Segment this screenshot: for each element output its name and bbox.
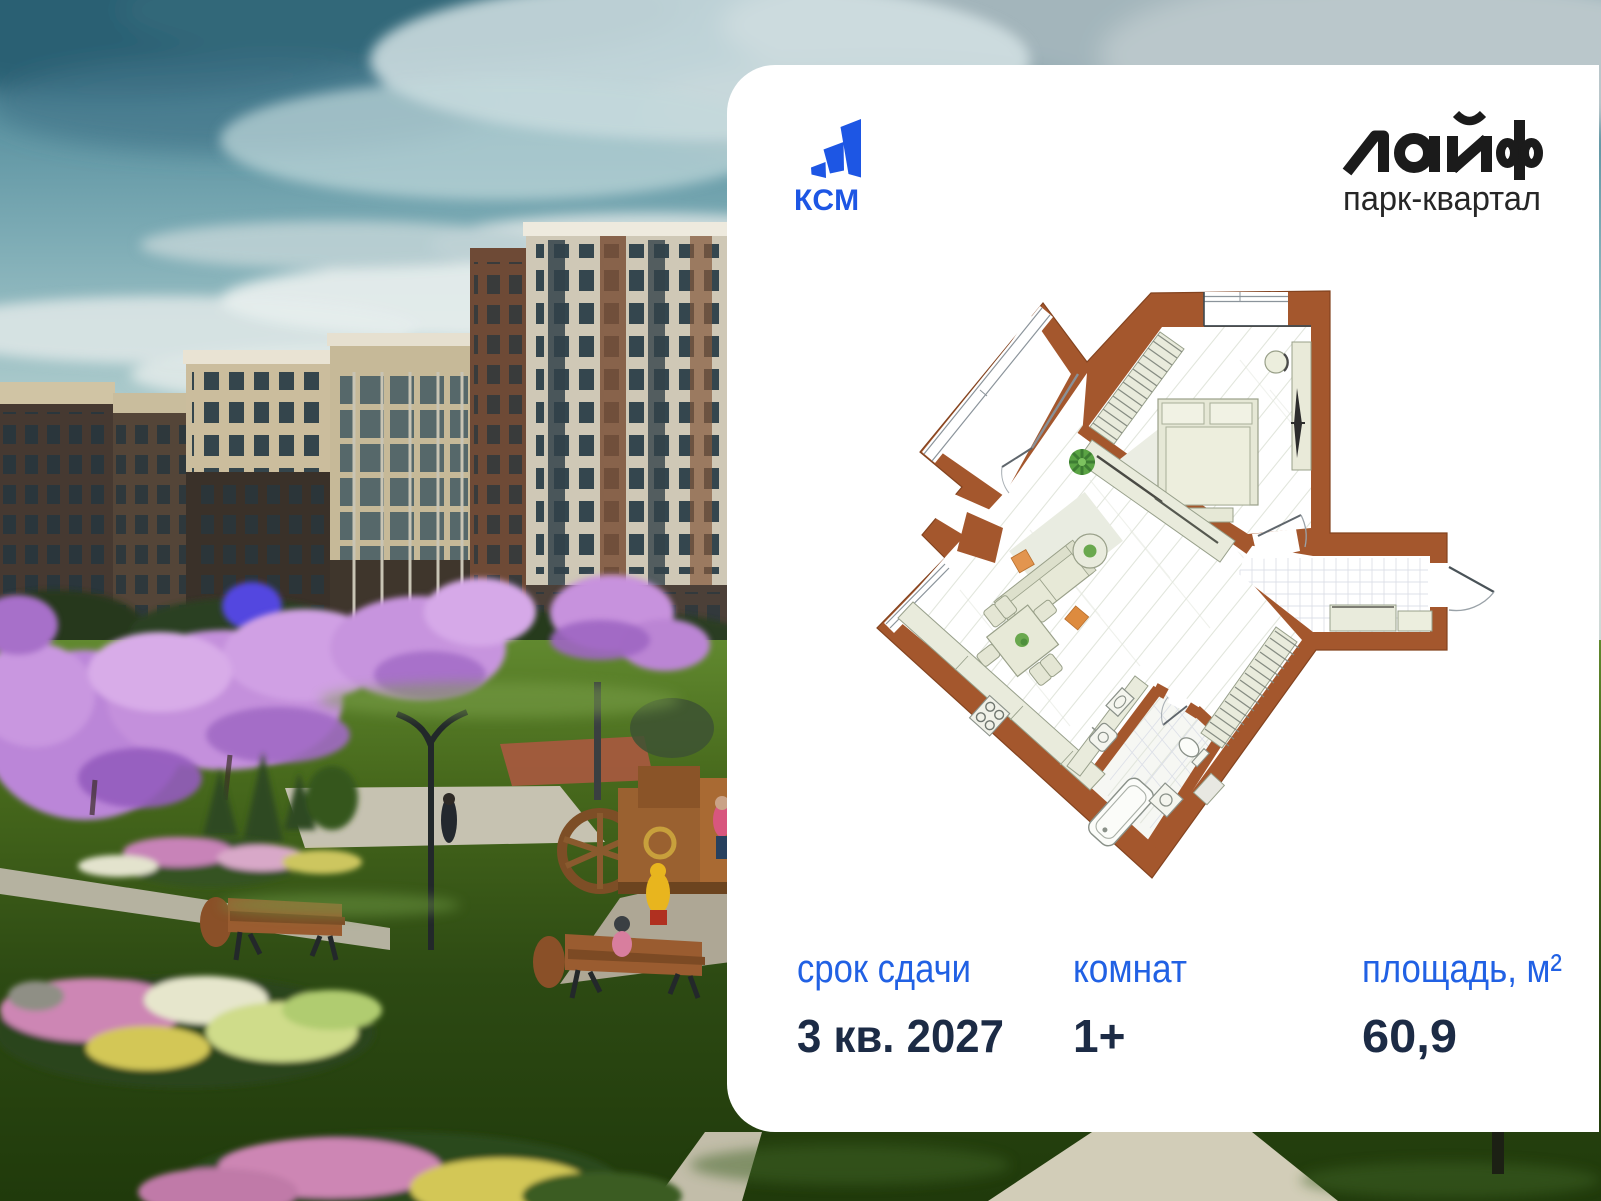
svg-text:парк-квартал: парк-квартал bbox=[1343, 180, 1541, 218]
svg-text:комнат: комнат bbox=[1073, 947, 1187, 991]
svg-text:60,9: 60,9 bbox=[1362, 1010, 1457, 1062]
svg-text:3 кв. 2027: 3 кв. 2027 bbox=[797, 1010, 1004, 1062]
svg-text:КСМ: КСМ bbox=[794, 184, 860, 217]
svg-text:срок сдачи: срок сдачи bbox=[797, 947, 971, 991]
svg-text:площадь, м²: площадь, м² bbox=[1362, 947, 1562, 991]
svg-text:1+: 1+ bbox=[1073, 1010, 1125, 1062]
